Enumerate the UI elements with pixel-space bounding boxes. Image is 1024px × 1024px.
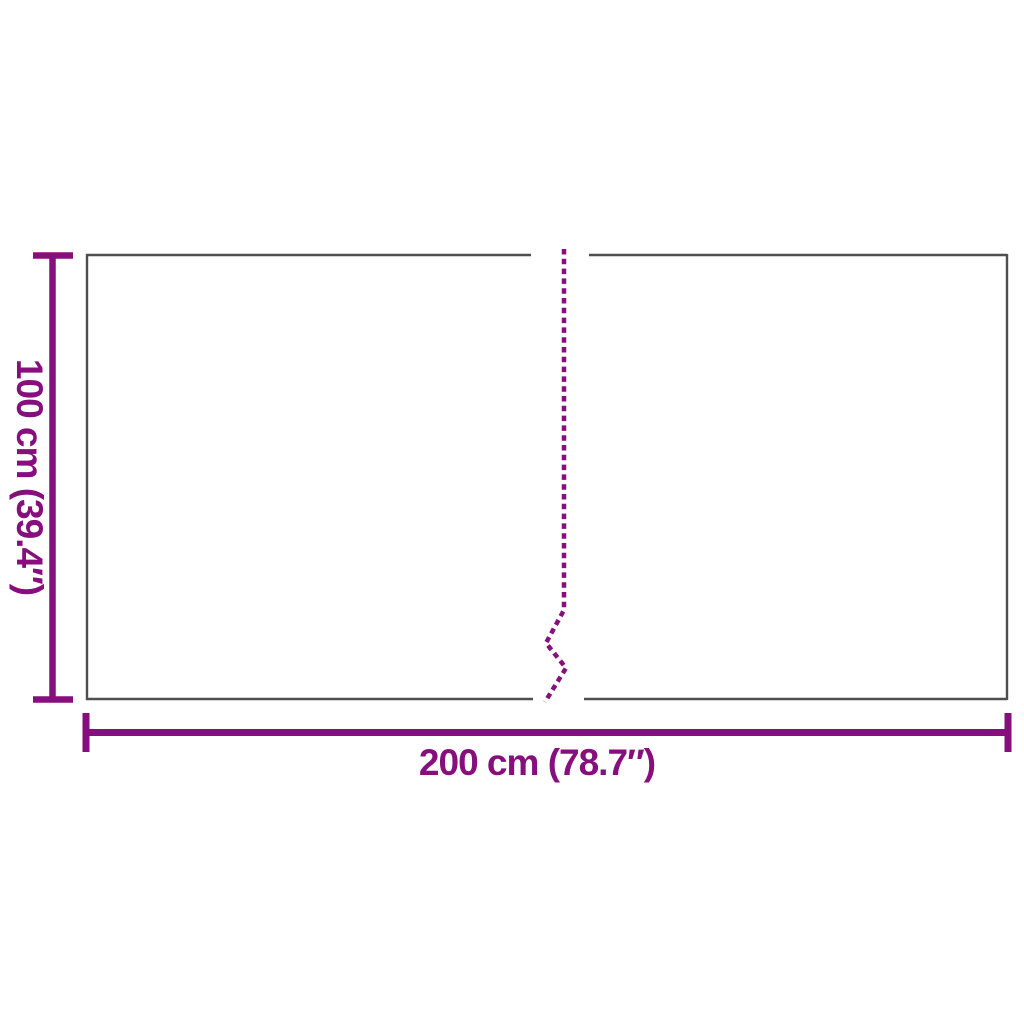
fold-dashed-line: [545, 249, 566, 702]
dimension-diagram-canvas: [0, 0, 1024, 1024]
product-dimension-diagram: 100 cm (39.4″) 200 cm (78.7″): [0, 0, 1024, 1024]
height-dimension-label: 100 cm (39.4″): [7, 247, 51, 707]
panel-rectangle: [86, 254, 1007, 700]
width-dimension-label: 200 cm (78.7″): [307, 741, 767, 785]
